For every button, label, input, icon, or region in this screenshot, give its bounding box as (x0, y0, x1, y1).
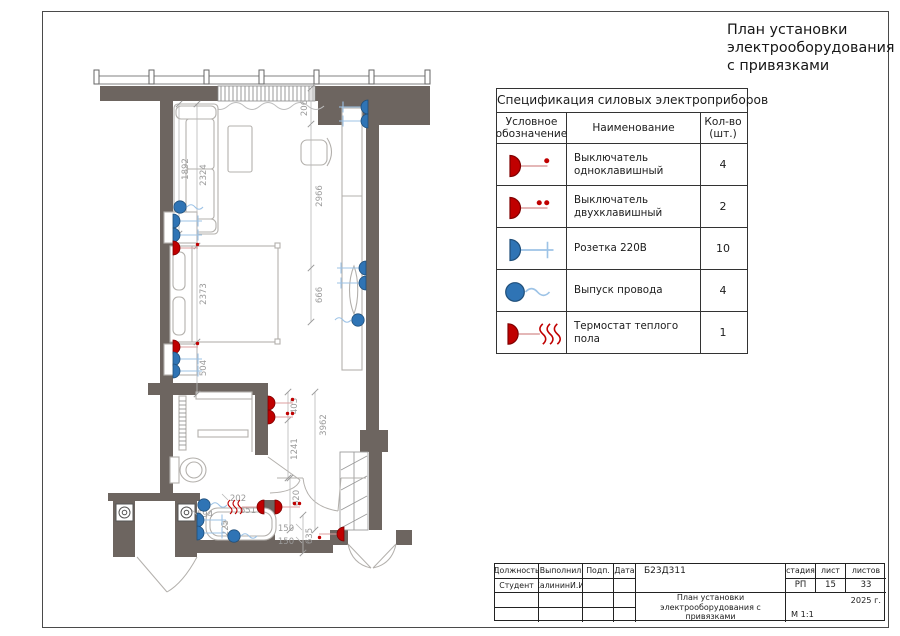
stamp-sign-value (583, 579, 614, 594)
stamp-date-value (614, 579, 636, 594)
dim-label: 2324 (199, 164, 209, 186)
nightstand (164, 212, 197, 243)
stamp-performed-label: Выполнил (539, 564, 583, 579)
spec-row: Выпуск провода 4 (497, 270, 747, 312)
stamp-empty-cell (495, 608, 539, 623)
stamp-empty-cell (539, 608, 583, 623)
coffee-table (228, 126, 252, 172)
spec-row: Розетка 220В 10 (497, 228, 747, 270)
bed (170, 243, 280, 344)
stamp-drawing-title: План установки электрооборудования с при… (636, 593, 786, 622)
spec-device-name: Термостат теплого пола (567, 312, 701, 353)
dim-label: 206 (300, 100, 310, 116)
legend-switch-one-key-symbol (497, 144, 567, 185)
spec-device-qty: 4 (701, 144, 745, 185)
toilet (170, 457, 206, 483)
spec-table-title: Спецификация силовых электроприборов (497, 89, 747, 113)
spec-device-name: Выключатель одноклавишный (567, 144, 701, 185)
stamp-position-value: Студент (495, 579, 539, 594)
stamp-scale: М 1:1 (791, 609, 814, 619)
balcony-railing (94, 70, 430, 84)
spec-device-name: Выпуск провода (567, 270, 701, 311)
stamp-stage-value: РП (786, 579, 816, 594)
spec-table-header: Условное обозначение Наименование Кол-во… (497, 113, 747, 144)
stamp-empty-cell (583, 593, 614, 608)
stamp-corner-cell: 2025 г. М 1:1 (786, 593, 886, 622)
spec-col-name: Наименование (567, 113, 701, 143)
stamp-sheets-label: листов (846, 564, 886, 579)
stamp-performed-value: КалининИ.И. (539, 579, 583, 594)
spec-col-symbol: Условное обозначение (497, 113, 567, 143)
dim-label: 2966 (315, 185, 325, 207)
dim-label: 635 (305, 528, 315, 544)
stamp-empty-cell (495, 593, 539, 608)
stamp-position-label: Должность (495, 564, 539, 579)
legend-floor-thermostat-symbol (497, 312, 567, 353)
built-in-closet (340, 452, 368, 530)
furniture (164, 104, 368, 540)
stamp-date-label: Дата (614, 564, 636, 579)
armchair (301, 138, 332, 166)
dim-label: 1241 (290, 438, 300, 460)
stamp-sign-label: Подп. (583, 564, 614, 579)
spec-row: Выключатель двухклавишный 2 (497, 186, 747, 228)
spec-device-qty: 2 (701, 186, 745, 227)
spec-row: Выключатель одноклавишный 4 (497, 144, 747, 186)
stamp-sheets-value: 33 (846, 579, 886, 594)
wardrobe (179, 392, 252, 452)
door-entry (137, 557, 197, 592)
spec-col-qty: Кол-во (шт.) (701, 113, 745, 143)
window (218, 86, 315, 101)
dim-label: 666 (315, 287, 325, 303)
dim-label: 150 (278, 537, 294, 547)
legend-switch-two-key-symbol (497, 186, 567, 227)
spec-device-qty: 1 (701, 312, 745, 353)
stamp-year: 2025 г. (851, 595, 881, 605)
stamp-doc-code: Б23Д311 (636, 564, 786, 593)
dim-label: 3962 (319, 414, 329, 436)
spec-device-qty: 4 (701, 270, 745, 311)
dim-label: 1892 (181, 158, 191, 180)
door-double (348, 544, 396, 568)
spec-device-name: Розетка 220В (567, 228, 701, 269)
stamp-stage-label: стадия (786, 564, 816, 579)
stamp-sheet-label: лист (816, 564, 846, 579)
dim-label: 504 (199, 360, 209, 376)
legend-socket-symbol (497, 228, 567, 269)
legend-wire-outlet-symbol (497, 270, 567, 311)
drawing-sheet: План установки электрооборудования с при… (0, 0, 900, 636)
dim-label: 2373 (199, 283, 209, 305)
door-wardrobe (268, 457, 300, 493)
stamp-empty-cell (614, 608, 636, 623)
spec-row: Термостат теплого пола 1 (497, 312, 747, 353)
spec-device-qty: 10 (701, 228, 745, 269)
riser-shafts (116, 504, 195, 521)
tv-console (342, 108, 362, 370)
stamp-empty-cell (583, 608, 614, 623)
spec-device-name: Выключатель двухклавишный (567, 186, 701, 227)
stamp-sheet-value: 15 (816, 579, 846, 594)
spec-table: Спецификация силовых электроприборов Усл… (496, 88, 748, 354)
stamp-empty-cell (539, 593, 583, 608)
dim-label: 150 (278, 524, 294, 534)
stamp-empty-cell (614, 593, 636, 608)
title-block: Должность Выполнил Подп. Дата Б23Д311 ст… (494, 563, 885, 621)
